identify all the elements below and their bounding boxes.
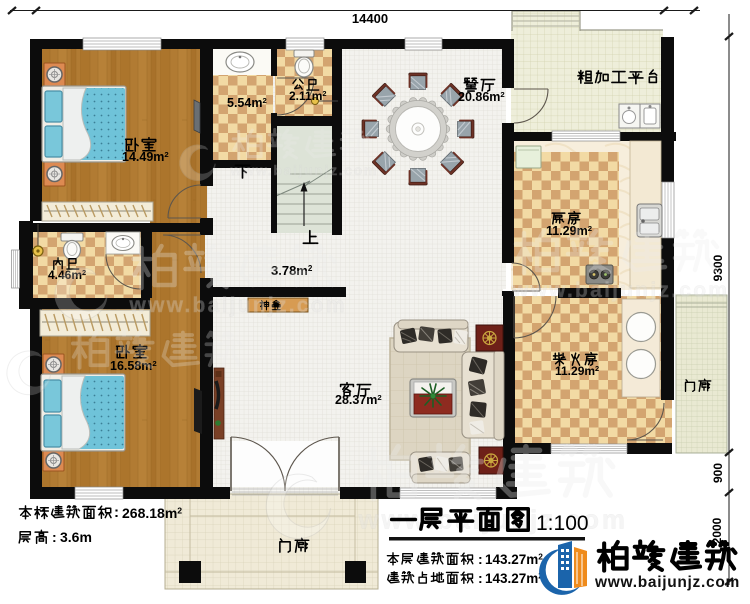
svg-text:11.29m2: 11.29m2 bbox=[555, 364, 599, 378]
svg-text:14400: 14400 bbox=[352, 11, 388, 26]
svg-text:5.54m2: 5.54m2 bbox=[227, 96, 267, 110]
svg-text:www.baijunjz.com: www.baijunjz.com bbox=[594, 574, 740, 591]
svg-text:2.11m2: 2.11m2 bbox=[289, 89, 327, 103]
svg-text::: : bbox=[114, 504, 119, 521]
svg-text:143.27m2: 143.27m2 bbox=[485, 552, 543, 567]
svg-text:28.37m2: 28.37m2 bbox=[335, 393, 382, 407]
svg-text:900: 900 bbox=[711, 463, 725, 483]
svg-text:14.49m2: 14.49m2 bbox=[122, 150, 169, 164]
svg-text:268.18m2: 268.18m2 bbox=[122, 505, 182, 521]
svg-text:1:100: 1:100 bbox=[536, 512, 589, 535]
svg-text::: : bbox=[478, 551, 483, 567]
svg-text::: : bbox=[478, 570, 483, 586]
svg-text::: : bbox=[52, 529, 57, 545]
svg-text:20.86m2: 20.86m2 bbox=[458, 90, 505, 104]
svg-text:www.baijunjz.com: www.baijunjz.com bbox=[230, 163, 379, 179]
svg-text:3.6m: 3.6m bbox=[60, 529, 92, 545]
svg-text:143.27m2: 143.27m2 bbox=[485, 571, 543, 586]
svg-text:www.baijunjz.com: www.baijunjz.com bbox=[511, 279, 729, 302]
svg-text:www.baijunjz.com: www.baijunjz.com bbox=[129, 294, 347, 317]
